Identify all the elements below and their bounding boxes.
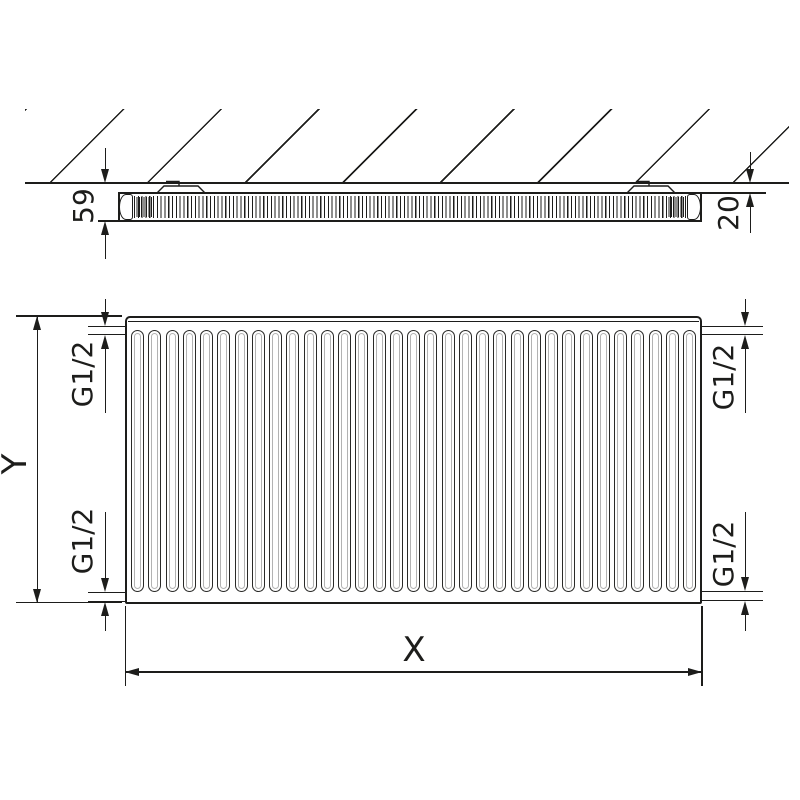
wall-hatch-pattern bbox=[25, 109, 789, 182]
dimension-line bbox=[745, 615, 747, 631]
fin-channel bbox=[666, 330, 679, 592]
arrowhead bbox=[741, 577, 749, 591]
fin-channel bbox=[580, 330, 593, 592]
fin-channel bbox=[235, 330, 248, 592]
fin-channel bbox=[286, 330, 299, 592]
fin-channel bbox=[407, 330, 420, 592]
dimension-line bbox=[105, 512, 107, 578]
fin-channel bbox=[304, 330, 317, 592]
arrowhead bbox=[101, 221, 109, 235]
fin-channel bbox=[545, 330, 558, 592]
fin-channel bbox=[476, 330, 489, 592]
dimension-line bbox=[745, 299, 747, 312]
arrowhead bbox=[101, 578, 109, 592]
arrowhead bbox=[746, 169, 754, 183]
width-dimension-label: X bbox=[402, 633, 425, 667]
end-cap-right bbox=[687, 194, 701, 220]
wall-gap-dimension-label: 20 bbox=[715, 195, 743, 231]
fin-channel bbox=[511, 330, 524, 592]
connection-stub-bottom-right bbox=[702, 591, 763, 601]
fin-channels bbox=[131, 330, 696, 592]
radiator-technical-drawing: 59 20 G1/2 G1/2 bbox=[0, 0, 800, 800]
fin-channel bbox=[424, 330, 437, 592]
fin-channel bbox=[373, 330, 386, 592]
arrowhead bbox=[101, 169, 109, 183]
connection-stub-top-right bbox=[702, 326, 763, 335]
arrowhead bbox=[746, 193, 754, 207]
fin-channel bbox=[493, 330, 506, 592]
extension-line bbox=[16, 315, 122, 317]
connection-stub-top-left bbox=[88, 326, 125, 335]
fin-channel bbox=[217, 330, 230, 592]
fin-channel bbox=[442, 330, 455, 592]
fin-channel bbox=[614, 330, 627, 592]
arrowhead bbox=[33, 589, 41, 603]
arrowhead bbox=[125, 668, 139, 676]
end-cap-left bbox=[119, 194, 133, 220]
arrowhead bbox=[741, 312, 749, 326]
fin-channel bbox=[131, 330, 144, 592]
dimension-line bbox=[105, 349, 107, 413]
connection-size-label: G1/2 bbox=[710, 344, 738, 411]
dimension-line bbox=[105, 299, 107, 312]
fin-channel bbox=[528, 330, 541, 592]
dimension-line bbox=[125, 671, 702, 673]
fin-dense-block-left bbox=[134, 197, 154, 217]
dimension-line bbox=[105, 235, 107, 259]
dimension-line bbox=[745, 349, 747, 413]
arrowhead bbox=[33, 316, 41, 330]
fin-channel bbox=[562, 330, 575, 592]
dimension-line bbox=[105, 616, 107, 631]
connection-size-label: G1/2 bbox=[69, 341, 97, 408]
fin-channel bbox=[269, 330, 282, 592]
height-dimension-label: Y bbox=[0, 454, 32, 475]
dimension-line bbox=[745, 512, 747, 577]
connection-size-label: G1/2 bbox=[710, 521, 738, 588]
fin-channel bbox=[597, 330, 610, 592]
fin-channel bbox=[355, 330, 368, 592]
arrowhead bbox=[688, 668, 702, 676]
fin-channel bbox=[183, 330, 196, 592]
dimension-line bbox=[750, 152, 752, 169]
extension-line bbox=[16, 602, 122, 604]
panel-top-inner-line bbox=[128, 321, 699, 322]
arrowhead bbox=[101, 335, 109, 349]
dimension-line bbox=[105, 148, 107, 170]
fin-channel bbox=[459, 330, 472, 592]
arrowhead bbox=[741, 335, 749, 349]
fin-channel bbox=[390, 330, 403, 592]
fin-channel bbox=[631, 330, 644, 592]
fin-dense-block-right bbox=[666, 197, 686, 217]
fin-channel bbox=[649, 330, 662, 592]
arrowhead bbox=[101, 602, 109, 616]
dimension-line bbox=[750, 207, 752, 233]
dimension-line bbox=[37, 316, 39, 603]
connection-stub-bottom-left bbox=[88, 592, 125, 602]
fin-channel bbox=[321, 330, 334, 592]
fin-channel bbox=[148, 330, 161, 592]
fin-channel bbox=[200, 330, 213, 592]
fin-channel bbox=[166, 330, 179, 592]
fin-channel bbox=[683, 330, 696, 592]
extension-line bbox=[702, 192, 766, 194]
connection-size-label: G1/2 bbox=[69, 508, 97, 575]
arrowhead bbox=[741, 601, 749, 615]
fin-channel bbox=[252, 330, 265, 592]
fin-channel bbox=[338, 330, 351, 592]
depth-dimension-label: 59 bbox=[70, 188, 98, 224]
convection-fins-pattern bbox=[134, 196, 686, 218]
